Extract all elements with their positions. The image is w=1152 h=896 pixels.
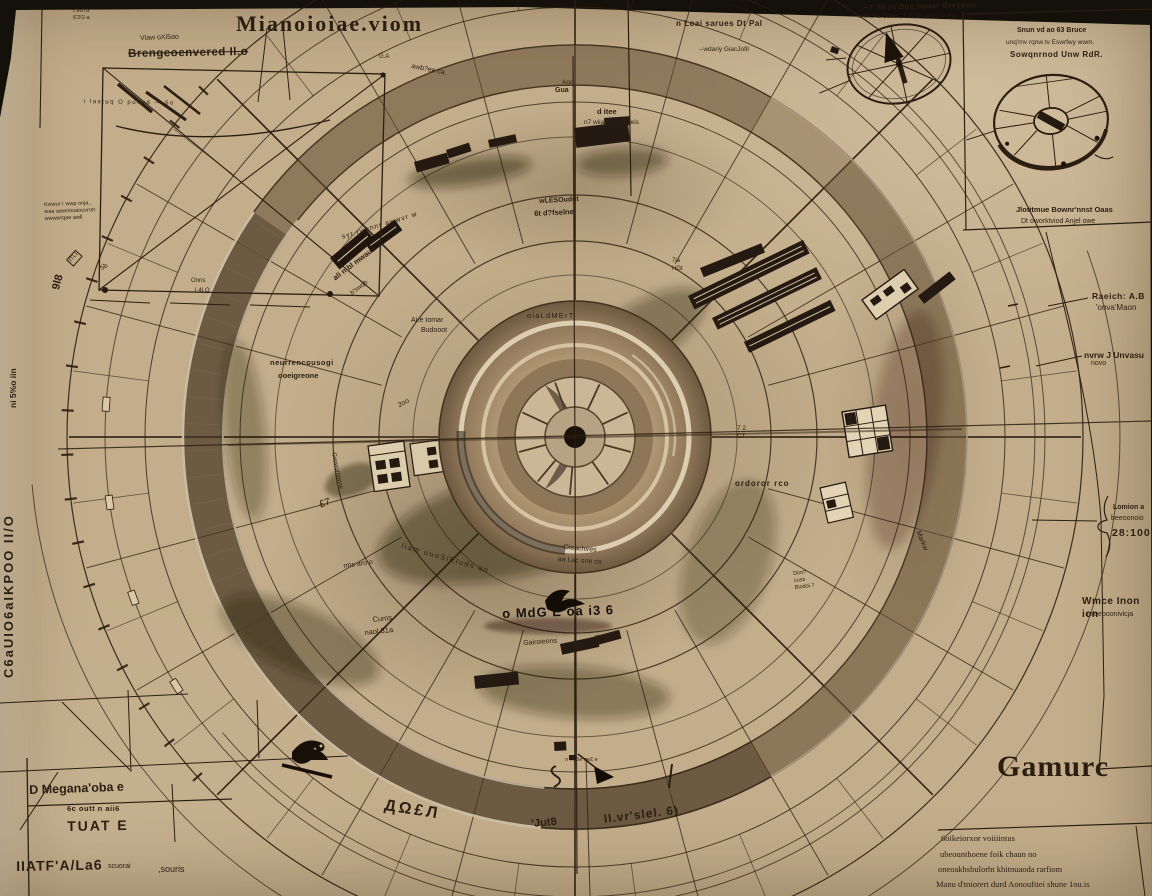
bracket-value: 28:100 [1112,527,1151,540]
plan-label-aoo: Aoo [562,79,574,87]
plan-curve-vertical: Gwwrunowvw [329,452,344,490]
plan-label-tiny-bottom: n 7rr5e ne£ e [565,757,598,764]
plan-label-jut: 'Jut8 [531,816,557,832]
plan-stamp-text: o MdG E oa i3 6 [502,602,614,622]
bottom-right-big-label: Gamurc [997,748,1109,786]
plan-label-dim: Dim? cuss Biodoi 7 [793,569,815,592]
plan-label-diea2: aa Lac one co [557,556,601,568]
blueprint-photo: Mianoioiae.viom c'eu?a 6'2!2-a n Loai sa… [0,0,1152,896]
plan-label-ordo: ordoror rco [735,479,790,489]
right-panel-line1: Snun vd ao 63 Bruce [1017,27,1086,36]
plan-label-gair: Gairoieons [523,638,557,649]
bottom-left-line3: TUAT E [67,817,129,836]
plan-label-oinar: oinar oa [594,633,620,643]
plan-label-zoo: 2oo [397,398,411,411]
tick-label-918: 9l8 [50,273,67,291]
left-vertical-text2: ni 5%o iin [8,298,19,408]
left-note-block: Kwwur r wwp onja.. waa aawnouaouvrotr ww… [44,200,96,222]
plan-label-rms: rms aro o [343,559,373,572]
label-l4lo: L4LO [195,288,210,296]
plan-label-neur1: neurrencousogi [270,358,334,367]
right-header2: arStcha.Caou , fiun Ot ar uum. Fu [858,13,956,21]
right-label-novo: novo [1091,360,1106,369]
bottom-left-line4b: scuorai [108,863,131,872]
label-onns: Onns [191,278,205,286]
plan-label-marw: Markw [913,530,929,552]
right-panel-line3: Sowqnrnod Unw RdR. [1010,50,1103,60]
top-panel-line1: n Loai sarues Dt Pal [676,19,762,29]
plan-label-n7: n7 wiia swwwbaeis [584,119,639,127]
corner-note: c'eu?a 6'2!2-a [73,8,90,22]
plan-label-cums2: naol 31a [364,625,394,637]
bottom-left-line4a: IIATF'A/La6 [16,856,103,875]
plan-label-liam: liam uuaSiEluds ao [400,541,490,575]
tick-label-itli: ITLI [66,249,83,266]
plan-label-aire2: Budooot [421,327,447,336]
plan-label-aire1: Aire tomar [411,317,443,326]
plan-label-72: 7 2 CT [737,425,746,441]
bottom-right-note4: Manu d'miorert durd Aonouftiei shune 1ou… [936,879,1090,890]
plan-curve-top: awb?ee ca. [410,63,447,78]
plan-label-7ia: 7ia HGt [672,258,683,273]
bottom-left-line4c: ,souris [158,864,185,875]
plan-label-neur2: ooeigreone [278,371,318,380]
tick-label-5b: 5b [99,262,110,273]
bottom-left-line2: 6c outt n aii6 [67,804,120,813]
plan-label-ditee: d itee [597,107,617,116]
right-panel-line2: unq'rnv rqnw tv Eswrfwy wwm. [1006,39,1094,47]
right-label-wmce-sub: m'oeooonivicja [1087,611,1133,620]
bracket-line2: beeoonoio [1111,515,1144,524]
plan-label-gua: Gua [555,87,569,96]
plan-label-sou1: wLESOudnt [539,196,579,207]
top-panel-line2: --wdariy GiacJofil [699,46,749,54]
bottom-left-line1: D Megana'oba e [29,780,124,799]
inset-label: Brengeoenvered Il.o [128,45,248,61]
plan-curve-left1: ali n bl mwaua [331,244,378,282]
bracket-line1: Lomion a [1113,504,1144,513]
sheet-title: Mianoioiae.viom [236,10,423,38]
plan-label-oial: oiaLdMErT [527,311,574,320]
inset-bottom-note: i lastuq O purwd — 6o [84,99,175,108]
plan-label-doen: ДΩ£Л [383,796,442,825]
plan-label-cums1: Cums [372,613,392,624]
bottom-right-note1: 6oikeiorxor voiiiintus [941,833,1015,844]
right-header1: ~7 50 pt Dec.houer Brecono [864,0,977,12]
plan-label-e7: £7 [318,497,332,512]
bottom-right-note3: oneoakhsbulorht khitnuaoda rarfiom [938,864,1062,875]
plan-label-sou2: 6t d?fselne [534,207,574,218]
plan-label-ga: G.A [379,54,389,62]
right-label-raeich: Raeich: A.B [1092,291,1145,302]
annotation-labels: Mianoioiae.viom c'eu?a 6'2!2-a n Loai sa… [0,0,1152,896]
plan-curve-left2: b'swqb [349,279,370,298]
right-label-onva: 'onva'Maon [1096,303,1136,313]
right-panel-caption1: Jlotitmue Bownr'nnst Oaas [1016,205,1113,214]
inset-top-note: Viaw oXi5ao [140,34,179,44]
right-panel-caption2: Dt oworktviod Anjel owe [1021,218,1095,227]
plan-curve-inner: syr rvwnnr awwvr w [341,211,419,242]
left-vertical-text: C6aUIO6aIKPOO II/O [1,428,17,678]
bottom-right-note2: ubeounthoene foik chaun no [940,849,1037,860]
plan-label-diea1: Dieachires [563,544,597,556]
plan-label-ilv: Il.vr'slel. 6) [603,803,680,827]
